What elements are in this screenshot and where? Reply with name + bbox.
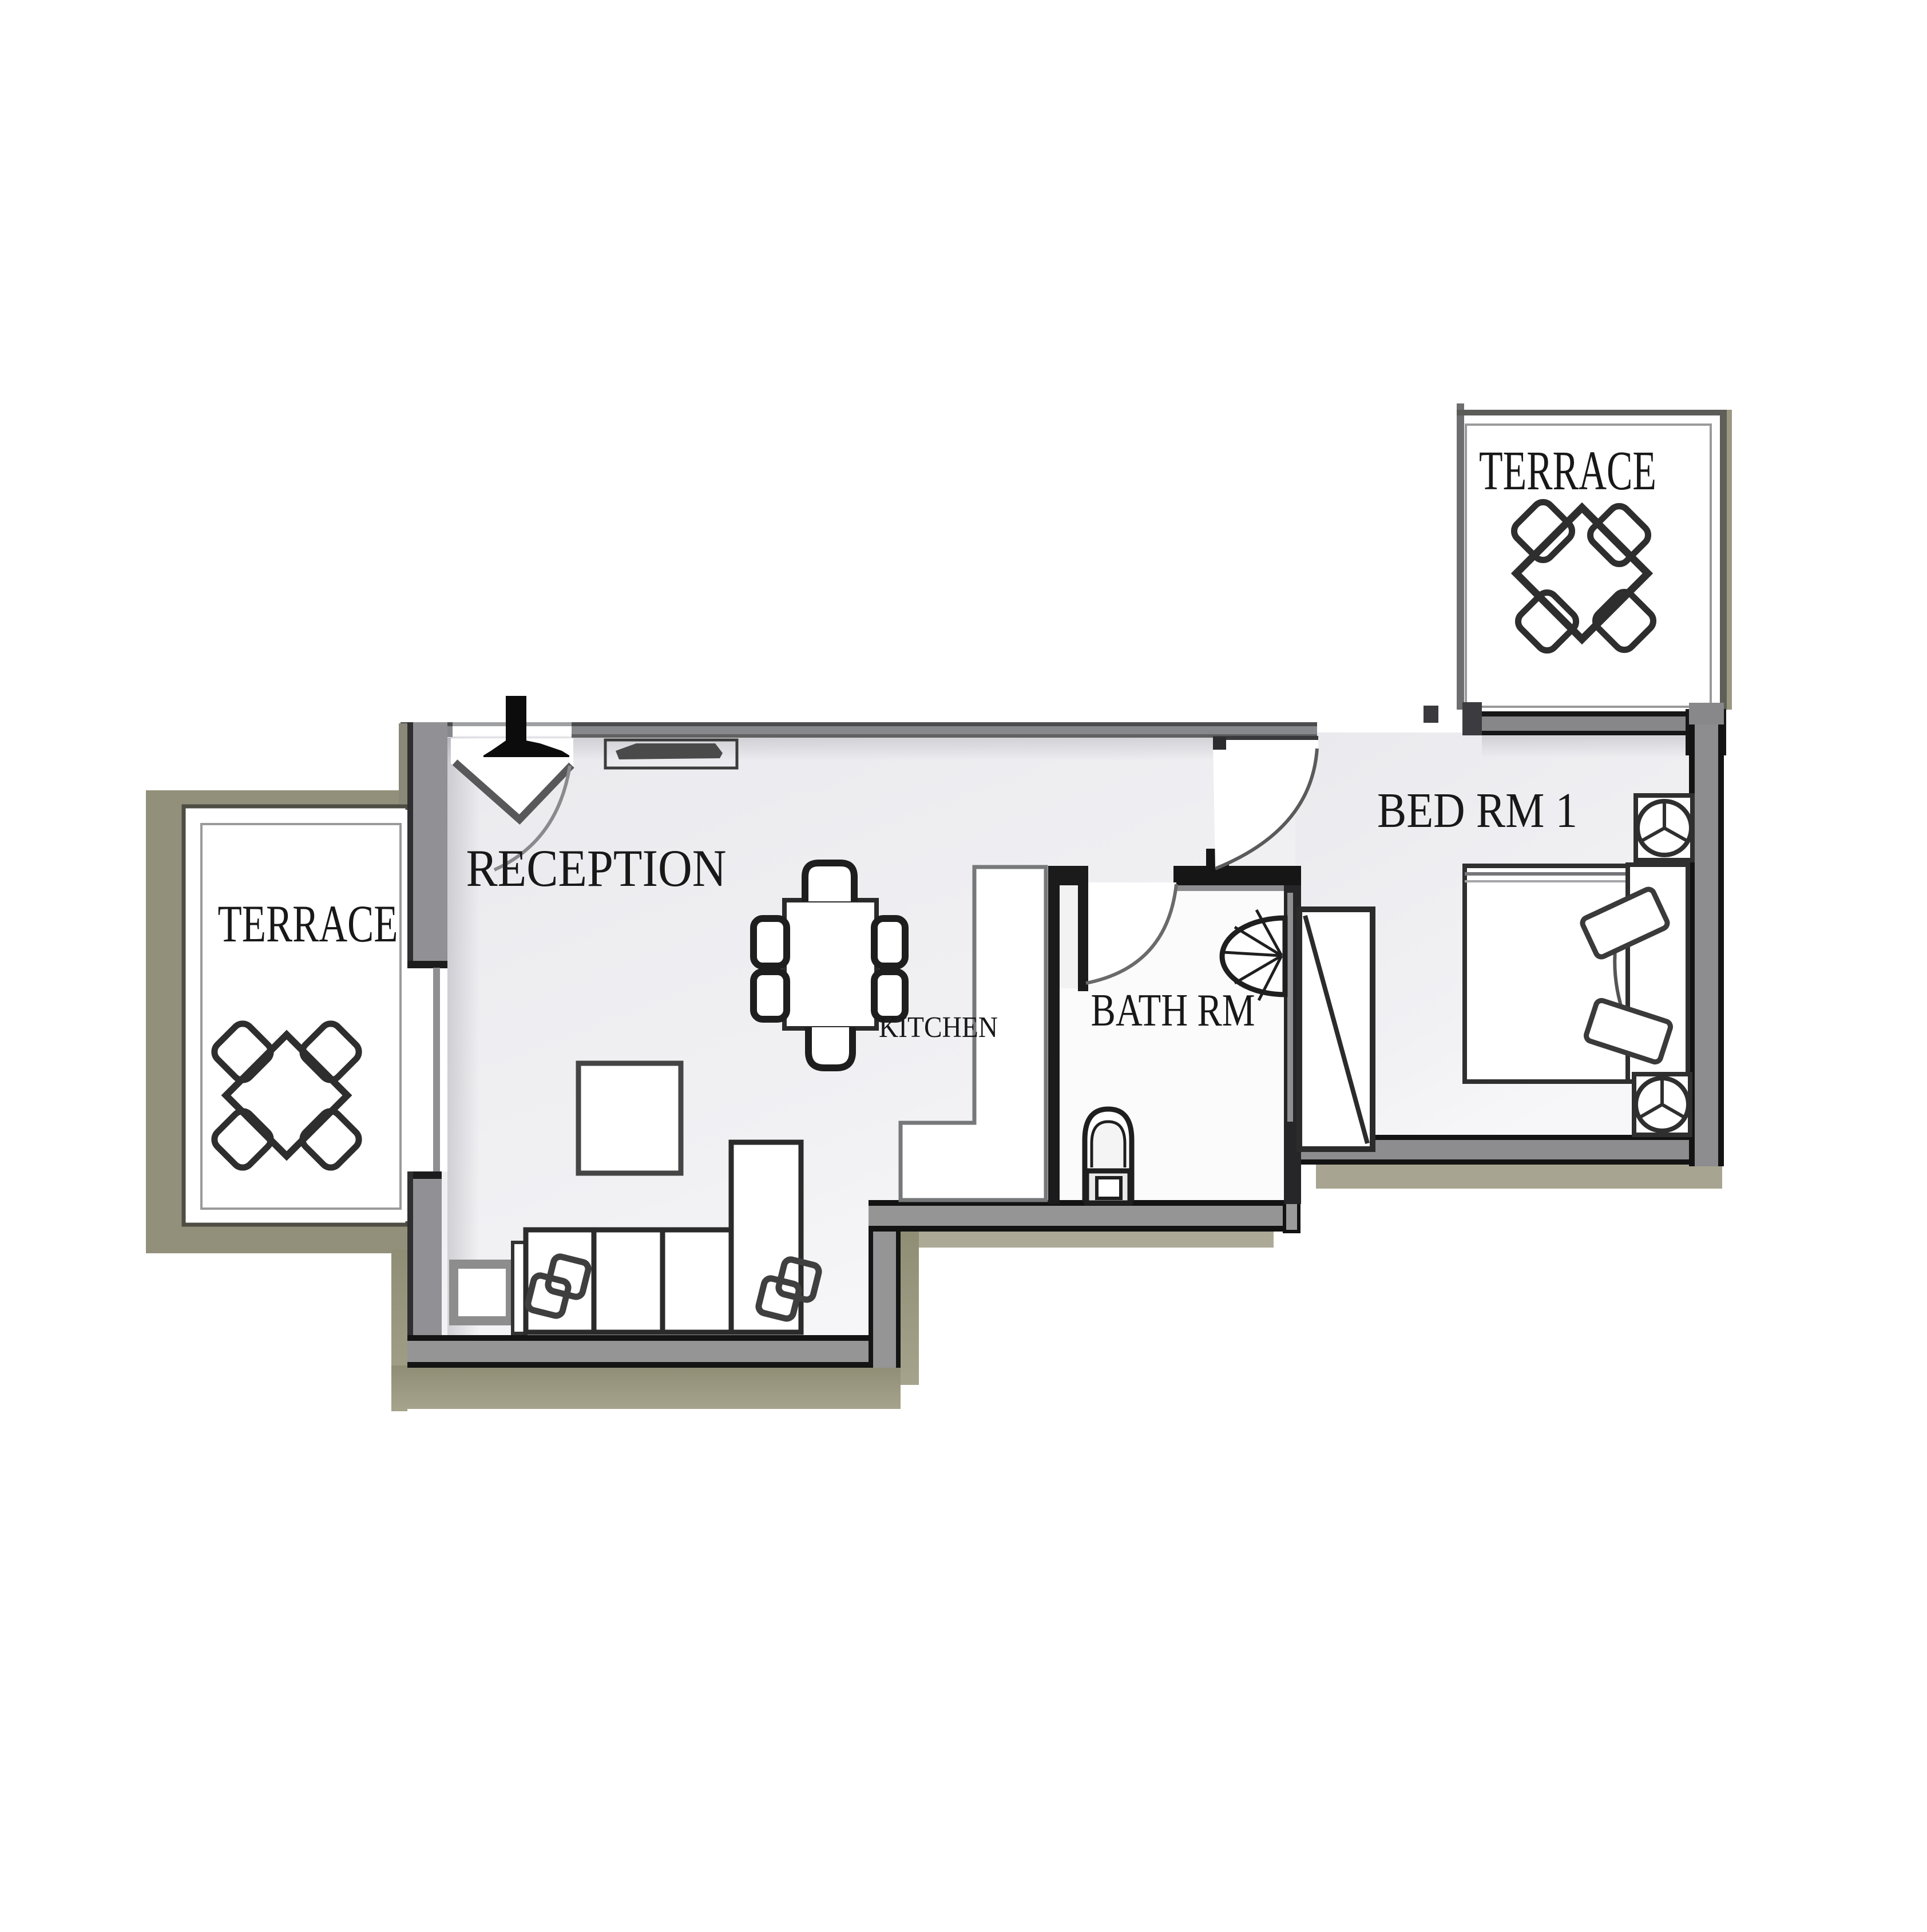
svg-text:KITCHEN: KITCHEN	[879, 1011, 998, 1044]
svg-text:RECEPTION: RECEPTION	[466, 839, 727, 897]
svg-text:BATH RM: BATH RM	[1091, 985, 1255, 1036]
svg-text:TERRACE: TERRACE	[218, 894, 398, 953]
svg-text:BED RM 1: BED RM 1	[1377, 782, 1577, 838]
svg-text:TERRACE: TERRACE	[1479, 440, 1656, 501]
